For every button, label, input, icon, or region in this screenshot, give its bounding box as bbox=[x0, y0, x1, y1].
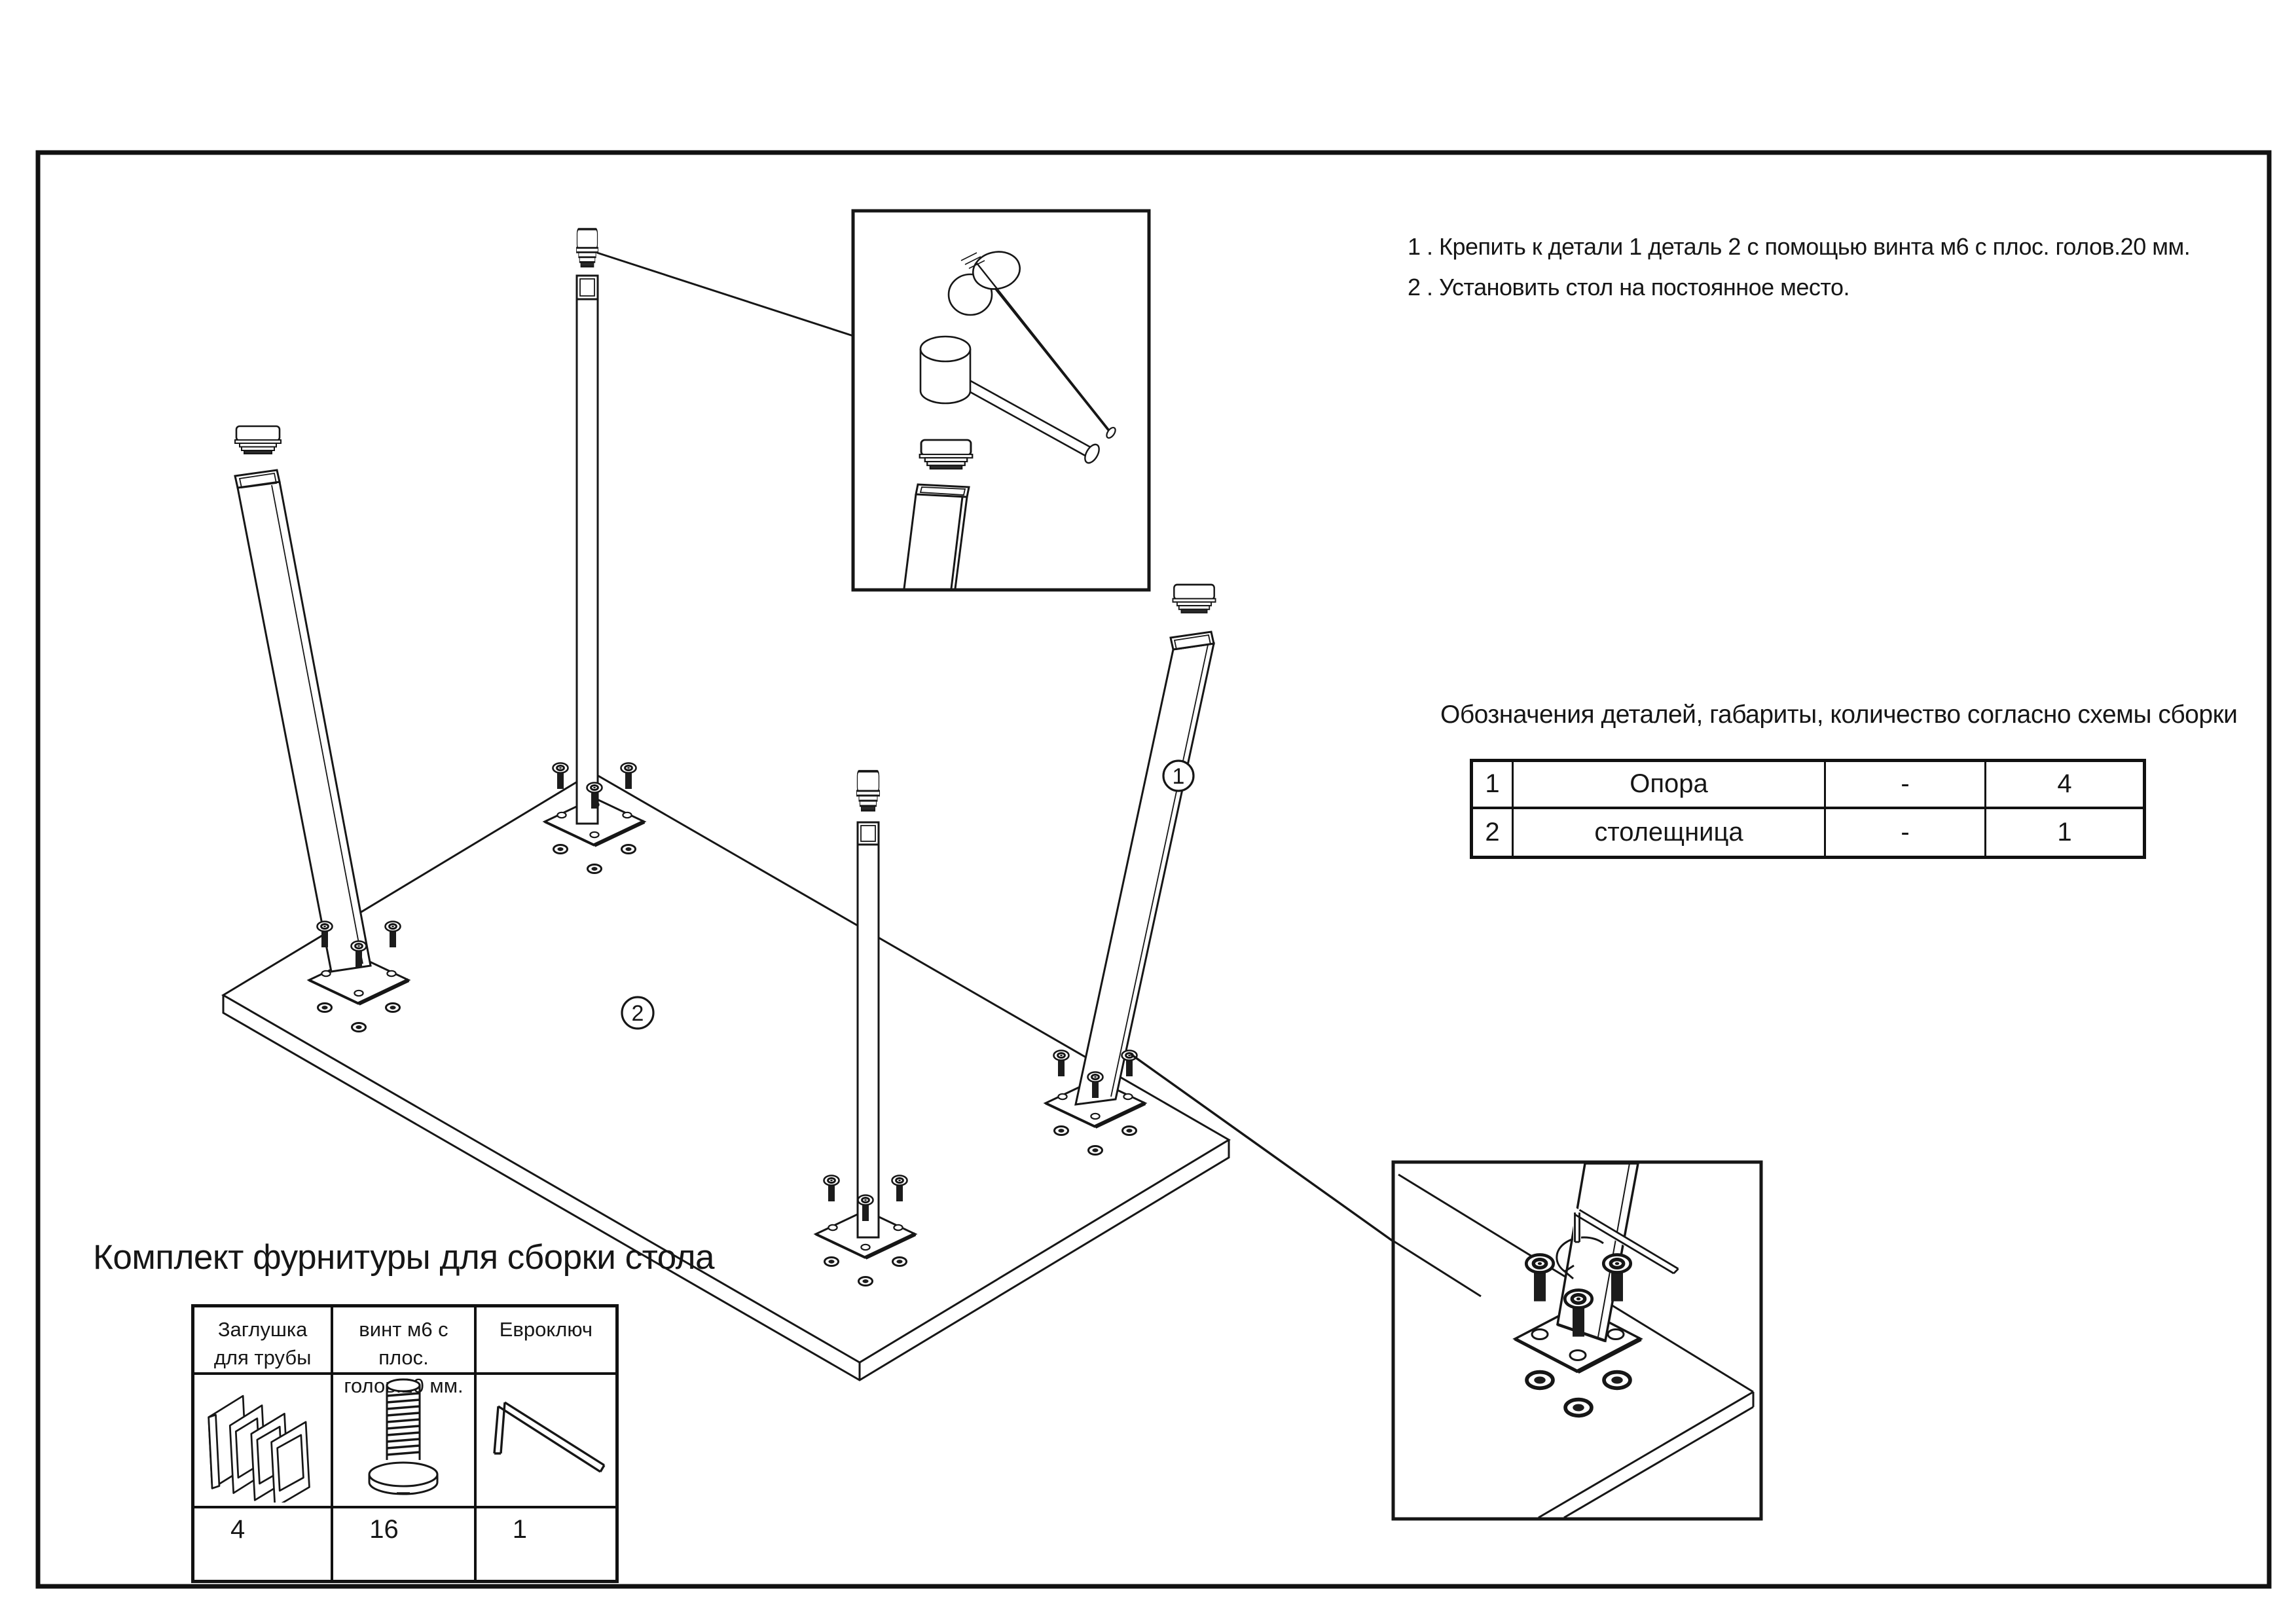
tabletop bbox=[223, 773, 1229, 1380]
cell-name: столещница bbox=[1514, 809, 1826, 856]
leg-back-right bbox=[1076, 632, 1214, 1104]
table-row: 1 Опора - 4 bbox=[1473, 762, 2143, 809]
tube-cap-icon bbox=[200, 1378, 325, 1503]
assembly-steps: 1 . Крепить к детали 1 деталь 2 с помощь… bbox=[1408, 227, 2190, 308]
cell-qty: 4 bbox=[1986, 762, 2143, 807]
part-label-2-text: 2 bbox=[632, 1001, 644, 1026]
leg-front-right bbox=[858, 822, 879, 1237]
callout-box-cap-detail bbox=[853, 211, 1149, 590]
cell-dims: - bbox=[1826, 762, 1986, 807]
kit-item-key bbox=[477, 1375, 615, 1508]
part-label-1: 1 bbox=[1163, 761, 1194, 791]
cell-qty: 1 bbox=[1986, 809, 2143, 856]
kit-qty-cap: 4 bbox=[194, 1508, 333, 1580]
cell-num: 2 bbox=[1473, 809, 1514, 856]
kit-qty-key: 1 bbox=[477, 1508, 615, 1580]
cell-dims: - bbox=[1826, 809, 1986, 856]
flat-head-screw-icon bbox=[361, 1375, 446, 1506]
table-row: 2 столещница - 1 bbox=[1473, 809, 2143, 856]
kit-qty-screw: 16 bbox=[333, 1508, 477, 1580]
designations-table: 1 Опора - 4 2 столещница - 1 bbox=[1470, 759, 2146, 859]
assembly-step-2: 2 . Установить стол на постоянное место. bbox=[1408, 267, 2190, 308]
callout-box-mounting-detail bbox=[1393, 1162, 1761, 1519]
leg-front-left bbox=[235, 470, 371, 972]
part-label-1-text: 1 bbox=[1173, 764, 1185, 789]
assembly-step-1: 1 . Крепить к детали 1 деталь 2 с помощь… bbox=[1408, 227, 2190, 267]
cell-name: Опора bbox=[1514, 762, 1826, 807]
kit-header-screw: винт м6 с плос. голов.20 мм. bbox=[333, 1307, 477, 1375]
designations-title: Обозначения деталей, габариты, количеств… bbox=[1440, 701, 2237, 729]
kit-header-key: Евроключ bbox=[477, 1307, 615, 1375]
assembly-instruction-sheet: 1 2 bbox=[0, 0, 2296, 1623]
kit-header-cap: Заглушка для трубы bbox=[194, 1307, 333, 1375]
cell-num: 1 bbox=[1473, 762, 1514, 807]
leg-back-left bbox=[577, 276, 598, 824]
leader-line-cap-detail bbox=[597, 253, 853, 336]
hardware-kit-table: Заглушка для трубы винт м6 с плос. голов… bbox=[191, 1304, 619, 1583]
part-label-2: 2 bbox=[622, 997, 653, 1029]
hex-key-icon bbox=[484, 1395, 608, 1486]
kit-item-cap bbox=[194, 1375, 333, 1508]
kit-item-screw bbox=[333, 1375, 477, 1508]
hardware-kit-title: Комплект фурнитуры для сборки стола bbox=[93, 1237, 714, 1277]
